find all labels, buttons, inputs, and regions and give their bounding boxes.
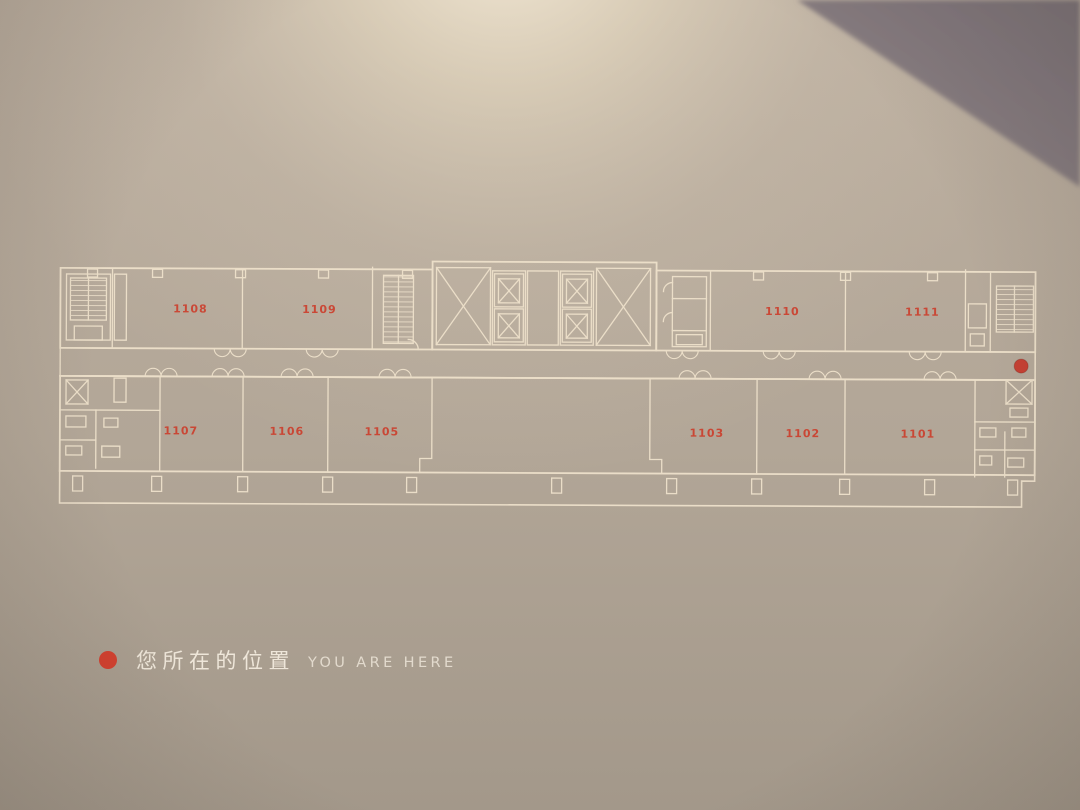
legend-label-zh: 您所在的位置 bbox=[136, 649, 295, 673]
room-label-1103: 1103 bbox=[690, 427, 725, 440]
floor-plan-sign-photo: 1108110911101111110711061105110311021101… bbox=[0, 0, 1080, 810]
you-are-here-dot bbox=[1014, 359, 1028, 373]
room-label-1105: 1105 bbox=[365, 425, 400, 438]
legend-label-en: YOU ARE HERE bbox=[307, 655, 457, 671]
room-label-1102: 1102 bbox=[786, 427, 821, 440]
legend-dot-icon bbox=[99, 651, 117, 669]
room-label-1106: 1106 bbox=[270, 425, 305, 438]
room-label-1101: 1101 bbox=[901, 428, 936, 441]
stair-mid-left-icon bbox=[383, 275, 418, 349]
room-label-1109: 1109 bbox=[302, 303, 337, 316]
light-glow bbox=[0, 0, 1080, 810]
room-label-1107: 1107 bbox=[164, 424, 199, 437]
room-label-1111: 1111 bbox=[905, 306, 940, 319]
room-label-1108: 1108 bbox=[173, 302, 208, 315]
room-label-1110: 1110 bbox=[765, 305, 800, 318]
